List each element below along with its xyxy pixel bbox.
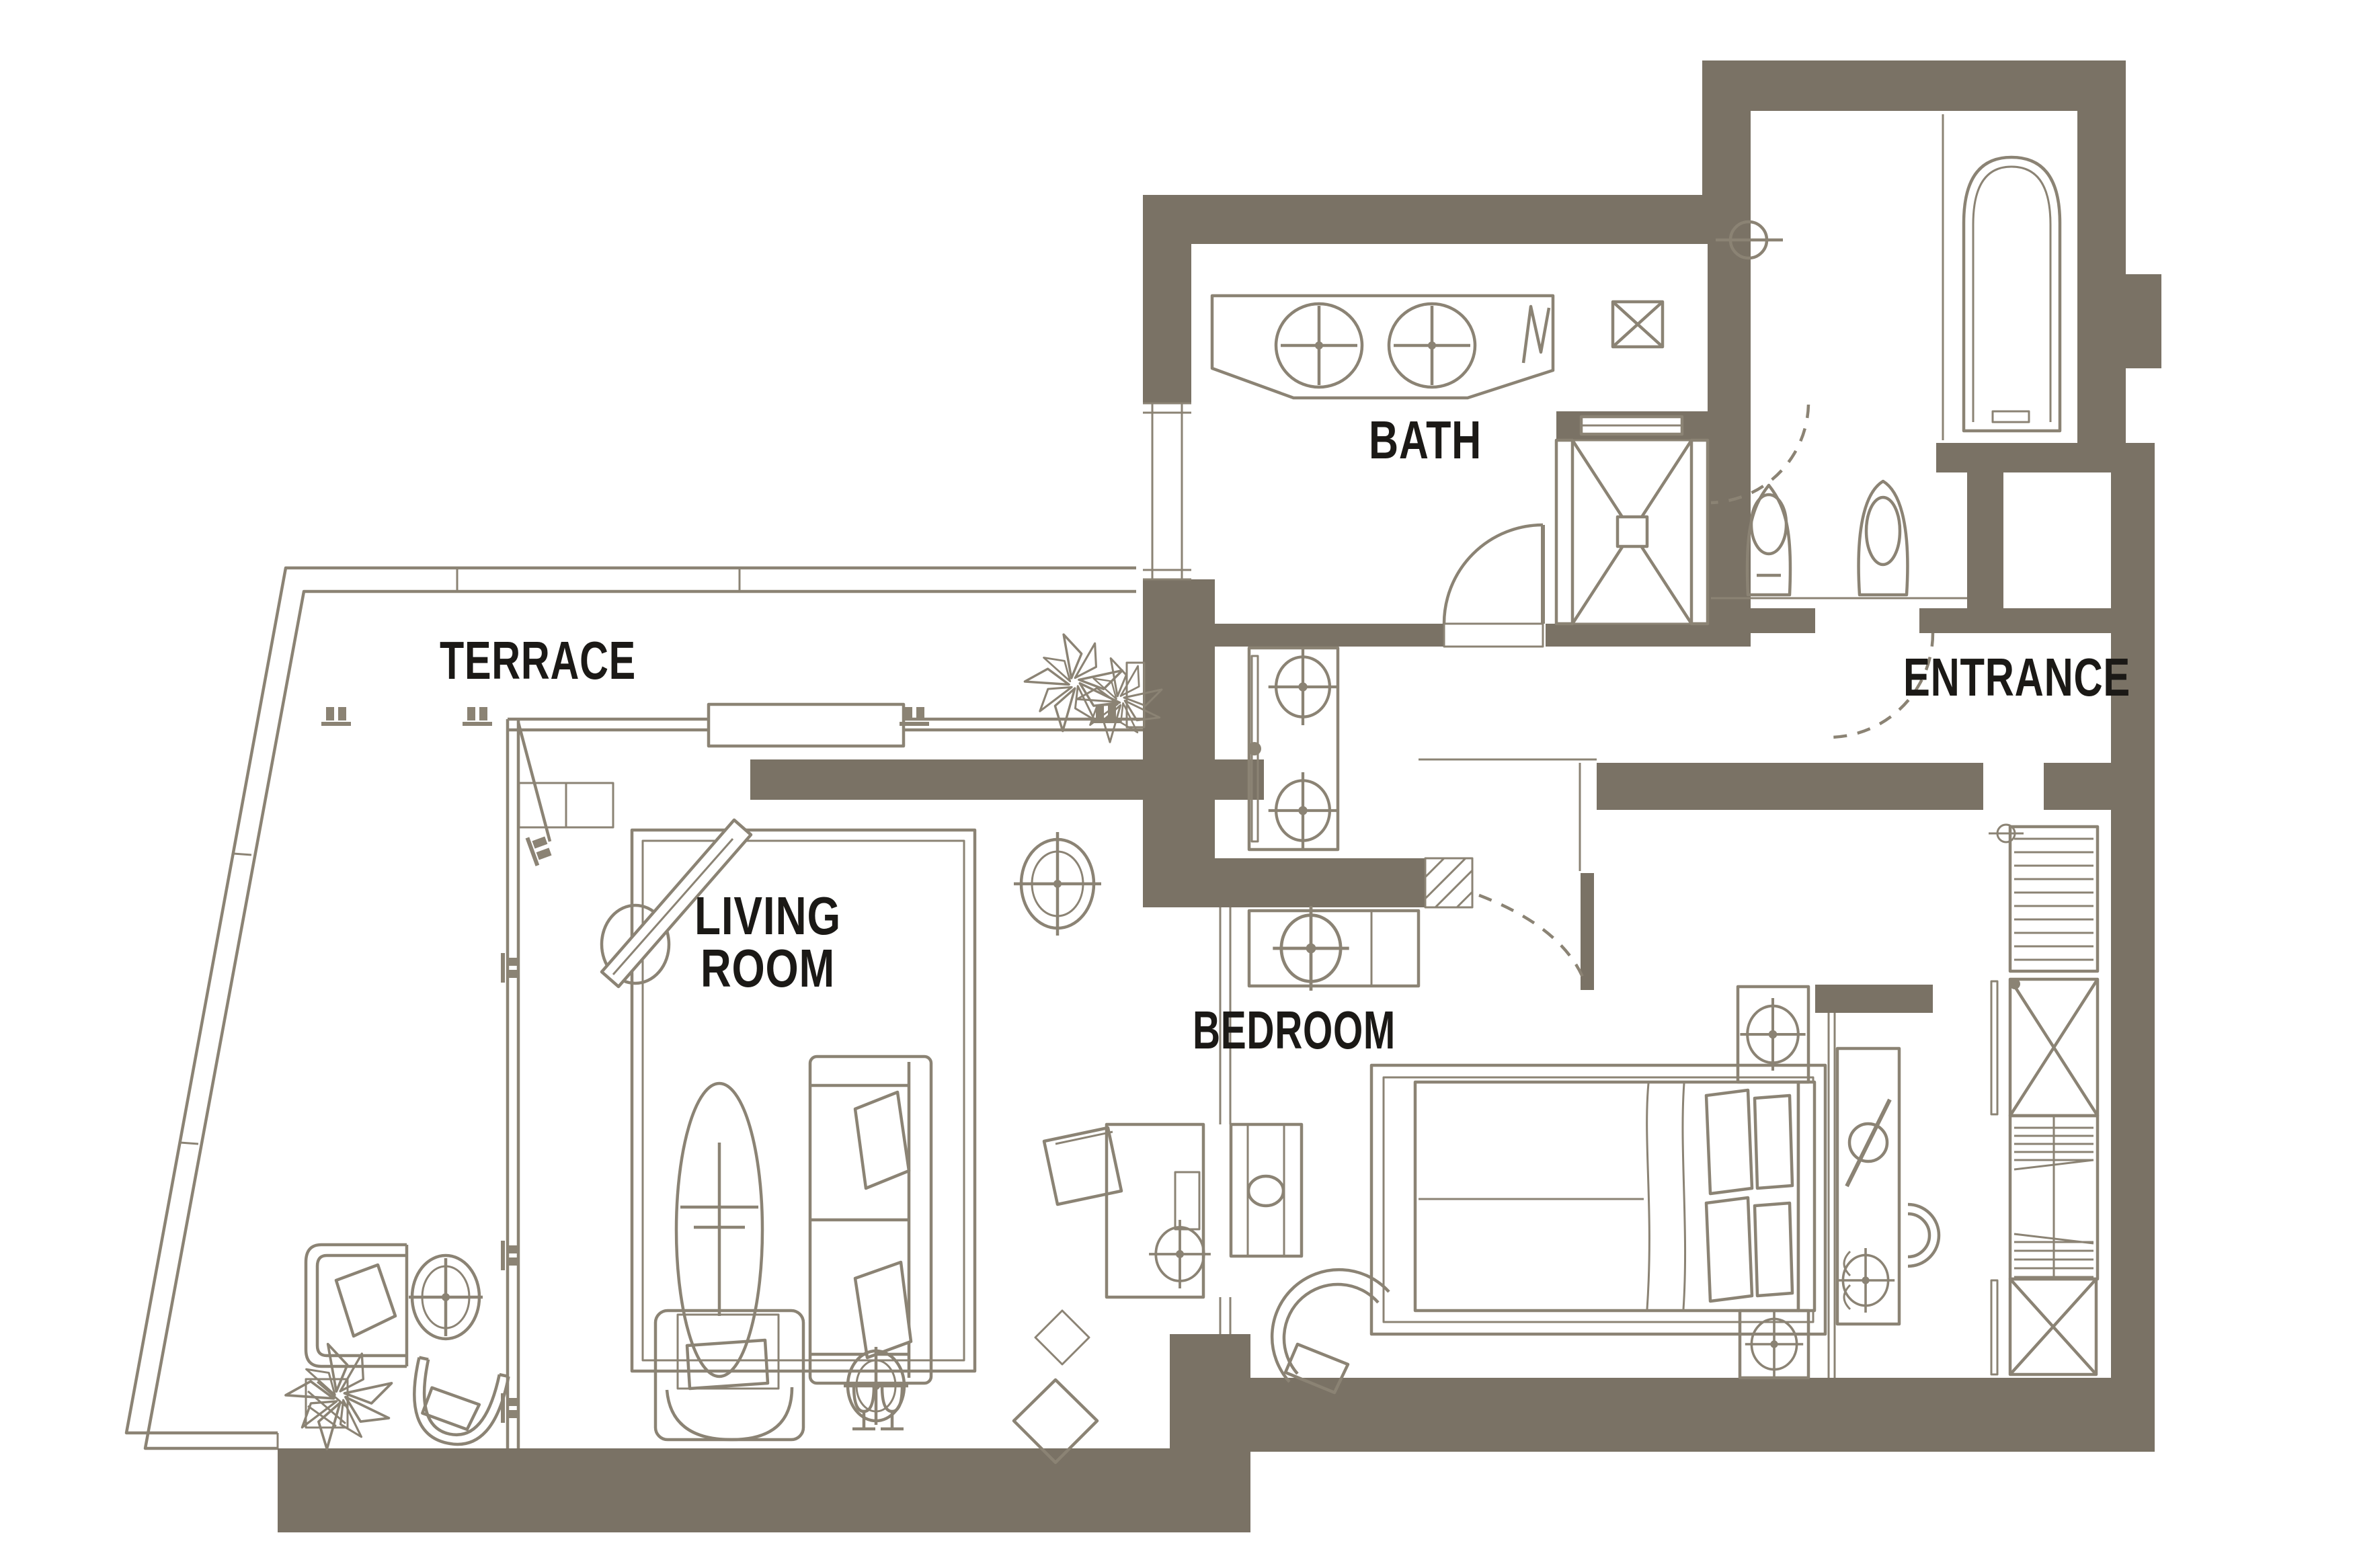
floor-plan-page: TERRACE BATH ENTRANCE LIVING ROOM BEDROO…: [0, 0, 2353, 1568]
corridor-zone: [1248, 648, 1597, 871]
wardrobe-shelves-top: [1989, 825, 2098, 971]
wardrobe-slider: [1991, 1280, 1997, 1374]
bedroom-door-swing: [1479, 895, 1586, 985]
sliding-door-rail: [508, 704, 1143, 1448]
right-wall: [2111, 632, 2155, 1452]
partition-stub: [1170, 1334, 1250, 1448]
toilet: [1747, 485, 1790, 595]
alcove-right-wall: [2077, 111, 2126, 443]
double-bed: [1415, 1082, 1814, 1311]
towel-symbol: [1523, 306, 1549, 363]
living-room-label-line1: LIVING: [694, 886, 841, 946]
bedroom-north-wall-east: [1597, 763, 1983, 810]
entrance-label: ENTRANCE: [1903, 647, 2130, 707]
nightstand-south: [1740, 1311, 1808, 1378]
bath-south-wall-east: [1546, 624, 1711, 647]
sofa: [810, 1057, 931, 1383]
storage-console: [1248, 648, 1338, 850]
wc-west-wall: [1708, 244, 1751, 647]
headboard: [1798, 1082, 1814, 1311]
floor-plan: TERRACE BATH ENTRANCE LIVING ROOM BEDROO…: [0, 0, 2353, 1568]
floor-change-line: [1419, 759, 1597, 871]
tv-console: [1231, 1124, 1302, 1256]
living-room-label-line2: ROOM: [701, 938, 835, 998]
sink-right: [1389, 304, 1475, 387]
corner-shelf: [519, 783, 613, 827]
wall-niche: [1613, 302, 1663, 347]
sliding-panel: [709, 704, 904, 746]
terrace-zone: [126, 568, 1162, 1453]
wall-bump: [2126, 274, 2161, 368]
bedroom-zone: [1231, 825, 2098, 1393]
desk-chair: [1044, 1128, 1121, 1204]
room-partition: [1220, 907, 1230, 1334]
bidet: [1859, 481, 1908, 595]
wardrobe: [1989, 825, 2098, 1374]
living-north-wall: [750, 759, 1264, 800]
living-room-zone: [519, 783, 1230, 1462]
bath-west-wall: [1143, 244, 1191, 403]
palm-plants: [1025, 634, 1162, 742]
bedroom-label: BEDROOM: [1193, 1000, 1396, 1060]
armchair-cushion: [687, 1340, 768, 1389]
terrace-label: TERRACE: [440, 630, 636, 690]
right-wall-upper: [2111, 443, 2155, 632]
bathtub: [1964, 157, 2060, 431]
bedroom-south-wall: [1250, 1378, 2155, 1452]
ceiling-light: [1014, 832, 1101, 936]
bath-window: [1143, 403, 1191, 579]
dressing-table: [1837, 1048, 1939, 1324]
bath-label: BATH: [1369, 410, 1482, 470]
headboard-wall-stub: [1815, 985, 1933, 1013]
bedroom-door-leaf: [1581, 873, 1594, 990]
bath-door: [1444, 525, 1543, 647]
sink-left: [1276, 304, 1362, 387]
nightstand-north: [1738, 987, 1808, 1082]
sofa-pillow: [855, 1092, 909, 1188]
terrace-potted-plant: [286, 1344, 392, 1449]
terrace-lounge-chair: [306, 1245, 407, 1366]
wardrobe-cabinet-bottom: [1991, 1279, 2096, 1374]
bath-zone: [1212, 114, 2060, 647]
terrace-tub-chair: [403, 1358, 508, 1453]
bedroom-cabinet: [1249, 906, 1419, 991]
floor-diamond-small: [1035, 1311, 1089, 1364]
bedroom-north-wall-west: [1143, 858, 1425, 907]
armchair: [655, 1311, 803, 1440]
wardrobe-cabinet-top: [1991, 979, 2098, 1116]
coffee-table-with-plant: [676, 1083, 762, 1376]
entrance-north-wall-b: [1919, 608, 2111, 633]
headboard-wall: [1829, 1013, 1835, 1378]
desk: [1044, 1124, 1211, 1297]
sofa-pillow: [855, 1262, 911, 1358]
living-south-wall: [278, 1448, 1250, 1532]
terrace-side-table: [409, 1255, 483, 1339]
wardrobe-slider: [1991, 981, 1997, 1114]
top-right-wall: [1702, 60, 2126, 111]
hatched-pier: [1425, 858, 1472, 907]
stool: [1908, 1204, 1939, 1266]
wardrobe-shelves-mid: [2010, 1116, 2098, 1279]
vanity-counter: [1212, 296, 1553, 398]
living-west-glass-wall: [508, 719, 518, 1448]
bedroom-north-wall-end: [2044, 763, 2111, 810]
bath-top-wall: [1143, 195, 1708, 244]
nook-west-wall: [1967, 472, 2003, 608]
shower-enclosure: [1556, 417, 1708, 624]
